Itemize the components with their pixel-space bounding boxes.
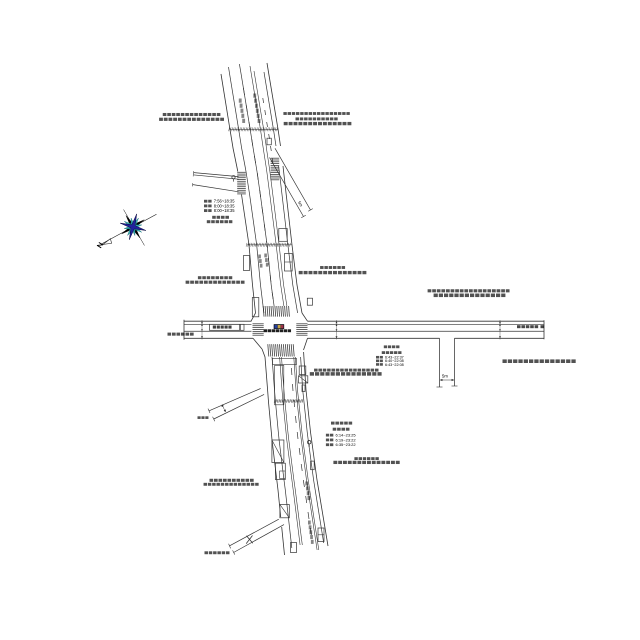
svg-text:5m: 5m xyxy=(442,374,448,379)
svg-text:6:35~23:22: 6:35~23:22 xyxy=(336,442,357,447)
svg-text:8:00~18:35: 8:00~18:35 xyxy=(214,208,235,213)
svg-text:6:43~22:08: 6:43~22:08 xyxy=(385,363,404,367)
